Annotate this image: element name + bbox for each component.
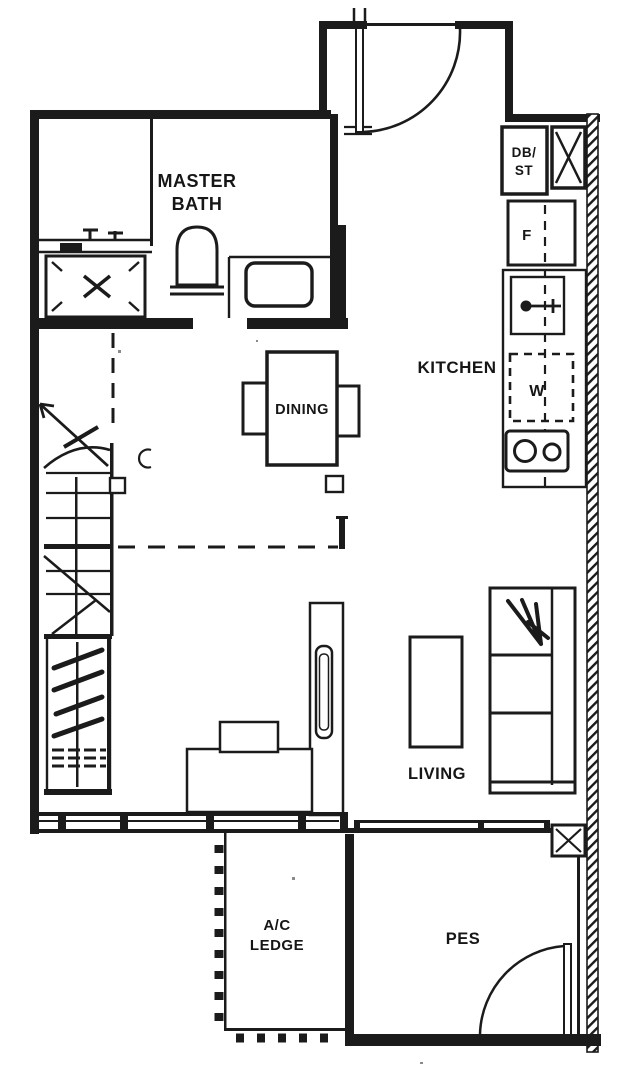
- stair-rail: [75, 477, 78, 637]
- wall-bath-bottom-a: [39, 318, 193, 329]
- stair-landing-edge: [44, 544, 112, 549]
- db-st-label-line2: ST: [515, 163, 534, 178]
- wall-bath-right: [330, 114, 338, 329]
- floorplan-page: MASTER BATH DB/ ST F W KITCHEN: [0, 0, 630, 1071]
- ac-ledge-label-line2: LEDGE: [250, 937, 304, 954]
- folded-clothes-icon: [52, 750, 106, 766]
- windows: [30, 812, 557, 833]
- db-st-cabinet: [502, 127, 547, 194]
- wall-left: [30, 110, 39, 834]
- wall-entry-top-b: [455, 21, 513, 29]
- wall-entry-left: [319, 24, 327, 119]
- fridge-label: F: [522, 227, 532, 244]
- sofa: [490, 588, 575, 793]
- wall-top-left: [30, 110, 331, 119]
- wall-bath-right-inner: [338, 225, 346, 329]
- wall-stub: [339, 518, 345, 549]
- wall-pes-left: [345, 834, 354, 1046]
- stair-direction-arrow-icon: [40, 404, 108, 466]
- wardrobe-top-edge: [44, 634, 112, 639]
- console-box: [220, 722, 278, 752]
- wardrobe-right-wall: [107, 636, 111, 792]
- fridge: [508, 201, 575, 265]
- wall-right-party: [587, 114, 598, 1052]
- dining-stool: [326, 476, 343, 492]
- dining: DINING: [243, 352, 359, 492]
- faucet-arm: [526, 299, 561, 313]
- floorplan-canvas: MASTER BATH DB/ ST F W KITCHEN: [0, 0, 630, 1071]
- tv-icon: [316, 646, 332, 738]
- pes-door-leaf: [564, 944, 571, 1035]
- master-bath-label-line2: BATH: [172, 194, 223, 214]
- ac-ledge: A/C LEDGE: [219, 833, 346, 1038]
- wardrobe-bottom-edge: [44, 789, 112, 795]
- window-band-bottom-left: [30, 812, 348, 833]
- pes-label: PES: [446, 930, 481, 948]
- dining-label: DINING: [275, 402, 329, 418]
- kitchen-label: KITCHEN: [417, 358, 496, 377]
- bath-divider-wall: [150, 114, 153, 246]
- tv-partition: [310, 603, 343, 815]
- pes: PES: [446, 825, 585, 1035]
- master-bath: MASTER BATH: [39, 114, 333, 318]
- ac-ledge-left-line: [224, 833, 227, 1031]
- stair-newel: [110, 478, 125, 493]
- console: [187, 722, 312, 812]
- dining-chair-right: [337, 386, 359, 436]
- wash-basin: [246, 263, 312, 306]
- door-jamb-ticks: [354, 8, 365, 21]
- stairs: [40, 404, 125, 637]
- wardrobe: [44, 634, 112, 795]
- toilet-icon: [177, 227, 217, 285]
- wall-top-right: [505, 114, 600, 122]
- console-cabinet: [187, 749, 312, 812]
- living: LIVING: [408, 588, 575, 793]
- washer-label: W: [529, 383, 545, 400]
- wall-stub-tick: [336, 516, 348, 519]
- coffee-table: [410, 637, 462, 747]
- entry-door: [354, 8, 460, 132]
- window-band-living-pes: [345, 820, 557, 833]
- speck: [420, 1062, 423, 1064]
- c-mark: [139, 450, 151, 468]
- ac-ledge-label-line1: A/C: [263, 917, 290, 934]
- wall-entry-right: [505, 21, 513, 122]
- ac-ledge-bottom-line: [224, 1028, 346, 1031]
- db-st-label-line1: DB/: [512, 145, 537, 160]
- pes-inner-wall-line: [577, 855, 580, 1035]
- vanity-end-block: [60, 243, 82, 252]
- entry-door-swing-arc: [363, 29, 460, 132]
- vanity-counter: [39, 240, 152, 252]
- entry-door-leaf: [356, 28, 363, 132]
- master-bath-label-line1: MASTER: [158, 171, 237, 191]
- pes-door-swing-arc: [480, 946, 564, 1034]
- living-label: LIVING: [408, 765, 466, 783]
- speck: [118, 350, 121, 353]
- stair-side-wall: [110, 443, 114, 636]
- speck: [292, 877, 295, 880]
- wall-pes-bottom: [345, 1034, 601, 1046]
- stair-treads: [46, 473, 110, 594]
- entry-opening-sill: [367, 23, 455, 26]
- kitchen: DB/ ST F W KITCHEN: [417, 127, 586, 487]
- toilet-base: [170, 287, 224, 294]
- speck: [256, 340, 258, 342]
- dining-chair-left: [243, 383, 267, 434]
